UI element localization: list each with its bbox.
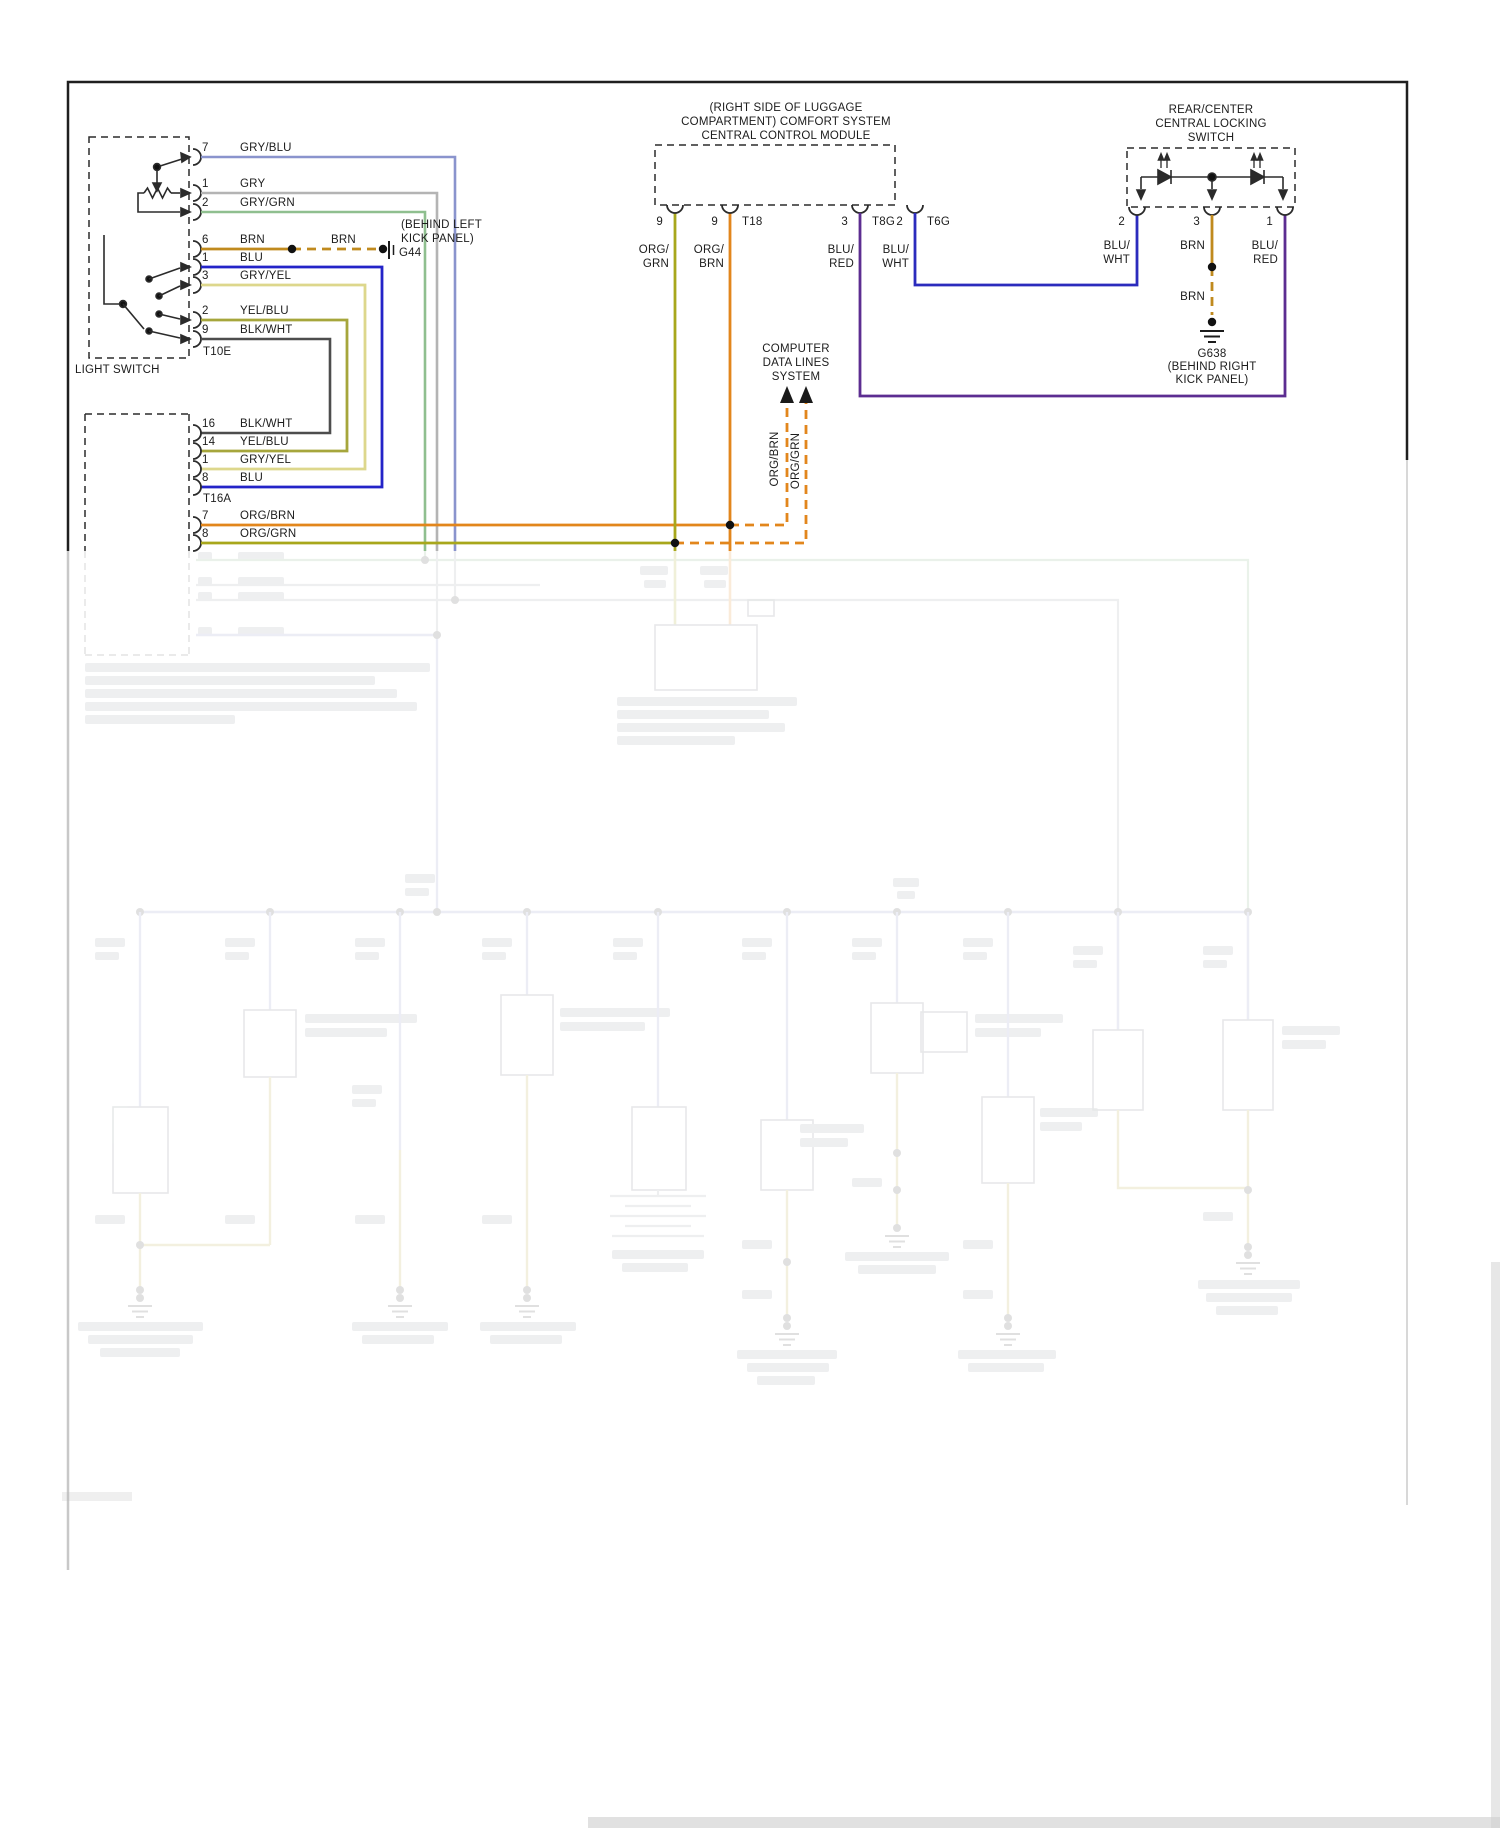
computer-data-lines-note: COMPUTER DATA LINES SYSTEM ORG/BRN ORG/G… <box>762 343 829 489</box>
footer-code-smudge <box>62 1492 132 1501</box>
pin-number: 14 <box>202 436 216 448</box>
wire-label: BLU <box>240 472 263 484</box>
module-pin-arcs <box>667 205 923 213</box>
wire-blu-loop <box>201 267 382 487</box>
pin-number: 6 <box>202 234 209 246</box>
lock-pin-arcs <box>1129 207 1293 215</box>
g638-note-2: KICK PANEL) <box>1176 374 1249 386</box>
ground-dot <box>1208 318 1216 326</box>
pin-number: 3 <box>1193 216 1200 228</box>
pin-number: 2 <box>896 216 903 228</box>
junction-dot <box>288 245 296 253</box>
t16a-pin-arcs <box>193 425 201 551</box>
ground-g638-label: G638 <box>1198 348 1227 360</box>
pin-number: 7 <box>202 510 209 522</box>
wire-label: GRY/BLU <box>240 142 292 154</box>
wire-label: GRY <box>240 178 265 190</box>
wire-gry-blu <box>201 157 455 551</box>
wire-label: ORG/BRN <box>240 510 295 522</box>
computer-note-2: DATA LINES <box>763 357 830 369</box>
wire-label: GRN <box>643 258 669 270</box>
wire-label: BLU <box>240 252 263 264</box>
pin-number: 2 <box>202 197 209 209</box>
brn-label-2: BRN <box>1180 291 1205 303</box>
pin-number: 2 <box>1118 216 1125 228</box>
pin-number: 1 <box>202 178 209 190</box>
central-locking-switch: REAR/CENTER CENTRAL LOCKING SWITCH 2 3 1… <box>1103 104 1295 386</box>
arrow-up-icon <box>799 386 813 403</box>
wire-label: ORG/ <box>694 244 725 256</box>
light-switch-internals <box>104 153 190 343</box>
junction-dot <box>379 245 387 253</box>
lock-title-2: CENTRAL LOCKING <box>1155 118 1266 130</box>
pin-number: 3 <box>841 216 848 228</box>
pin-number: 8 <box>202 528 209 540</box>
ground-g44-label: G44 <box>399 247 422 259</box>
wiring-diagram-page: LIGHT SWITCH T10E 7GRY/B <box>0 0 1500 1828</box>
connector-label: T18 <box>742 216 762 228</box>
scan-artifact-right <box>1491 1262 1500 1828</box>
lock-pin-labels: 2 3 1 BLU/WHT BRN BLU/RED <box>1103 216 1278 266</box>
pin-number: 1 <box>202 454 209 466</box>
brn-label-2: BRN <box>331 234 356 246</box>
lock-title-1: REAR/CENTER <box>1169 104 1254 116</box>
t16a-pin-labels: 16BLK/WHT 14YEL/BLU 1GRY/YEL 8BLU 7ORG/B… <box>202 418 296 540</box>
pin-number: 9 <box>202 324 209 336</box>
wire-label: ORG/GRN <box>240 528 296 540</box>
module-title-3: CENTRAL CONTROL MODULE <box>701 130 870 142</box>
light-switch-label: LIGHT SWITCH <box>75 364 160 376</box>
wire-label: GRY/YEL <box>240 454 291 466</box>
light-switch-connector-label: T10E <box>203 346 231 358</box>
kick-panel-note-2: KICK PANEL) <box>401 233 474 245</box>
pin-number: 9 <box>656 216 663 228</box>
t16a-box-faded <box>85 551 189 655</box>
diode-icon <box>1158 170 1171 184</box>
t16a-connector: T16A 16BLK/WHT 14YEL/BLU 1GRY/YEL 8BLU 7… <box>85 414 296 551</box>
pin-number: 8 <box>202 472 209 484</box>
t16a-connector-label: T16A <box>203 493 231 505</box>
comfort-control-module: (RIGHT SIDE OF LUGGAGE COMPARTMENT) COMF… <box>639 102 950 270</box>
pin-number: 1 <box>202 252 209 264</box>
pin-number: 1 <box>1266 216 1273 228</box>
wire-label: YEL/BLU <box>240 436 289 448</box>
module-pin-labels: 9 9T18 3T8G 2T6G ORG/GRN ORG/BRN BLU/RED… <box>639 216 950 270</box>
wire-label: RED <box>1253 254 1278 266</box>
wire-label: GRY/YEL <box>240 270 291 282</box>
faded-courtesy-light-section <box>78 551 1340 1385</box>
t16a-box <box>85 414 189 551</box>
pin-number: 7 <box>202 142 209 154</box>
pin-number: 2 <box>202 305 209 317</box>
light-switch-pin-labels: 7GRY/BLU 1GRY 2GRY/GRN 6BRN 1BLU 3GRY/YE… <box>202 142 295 336</box>
module-title-2: COMPARTMENT) COMFORT SYSTEM <box>681 116 891 128</box>
module-title-1: (RIGHT SIDE OF LUGGAGE <box>709 102 862 114</box>
g44-note: BRN (BEHIND LEFT KICK PANEL) G44 <box>331 219 482 259</box>
scan-artifact-bottom <box>588 1817 1500 1828</box>
wire-label: GRY/GRN <box>240 197 295 209</box>
bus-label-org-brn: ORG/BRN <box>769 431 781 486</box>
pin-number: 16 <box>202 418 215 430</box>
wire-label: WHT <box>882 258 909 270</box>
module-box <box>655 145 895 205</box>
connector-label: T6G <box>927 216 950 228</box>
junction-dot <box>726 521 734 529</box>
arrow-up-icon <box>780 386 794 403</box>
wire-label: BLU/ <box>1252 240 1279 252</box>
wire-label: BRN <box>1180 240 1205 252</box>
wire-label: BLK/WHT <box>240 418 293 430</box>
pin-number: 9 <box>711 216 718 228</box>
diode-icon <box>1251 170 1264 184</box>
wire-label: BLU/ <box>1104 240 1131 252</box>
wire-label: BLK/WHT <box>240 324 293 336</box>
connector-label: T8G <box>872 216 895 228</box>
g638-note-1: (BEHIND RIGHT <box>1168 361 1257 373</box>
schematic-canvas: LIGHT SWITCH T10E 7GRY/B <box>0 0 1500 1828</box>
computer-note-1: COMPUTER <box>762 343 829 355</box>
kick-panel-note-1: (BEHIND LEFT <box>401 219 482 231</box>
ground-icon <box>1200 331 1224 342</box>
computer-note-3: SYSTEM <box>772 371 821 383</box>
wire-label: WHT <box>1103 254 1130 266</box>
wire-label: BLU/ <box>883 244 910 256</box>
pin-number: 3 <box>202 270 209 282</box>
wire-label: BRN <box>699 258 724 270</box>
wire-gry-grn <box>201 212 425 551</box>
junction-dot <box>1208 263 1216 271</box>
wire-label: YEL/BLU <box>240 305 289 317</box>
wire-label: ORG/ <box>639 244 670 256</box>
junction-dot <box>671 539 679 547</box>
bus-label-org-grn: ORG/GRN <box>790 433 802 489</box>
wire-label: RED <box>829 258 854 270</box>
lock-internals <box>1137 154 1287 199</box>
wire-label: BLU/ <box>828 244 855 256</box>
light-switch-pin-arcs <box>193 149 201 347</box>
wire-label: BRN <box>240 234 265 246</box>
lock-title-3: SWITCH <box>1188 132 1235 144</box>
